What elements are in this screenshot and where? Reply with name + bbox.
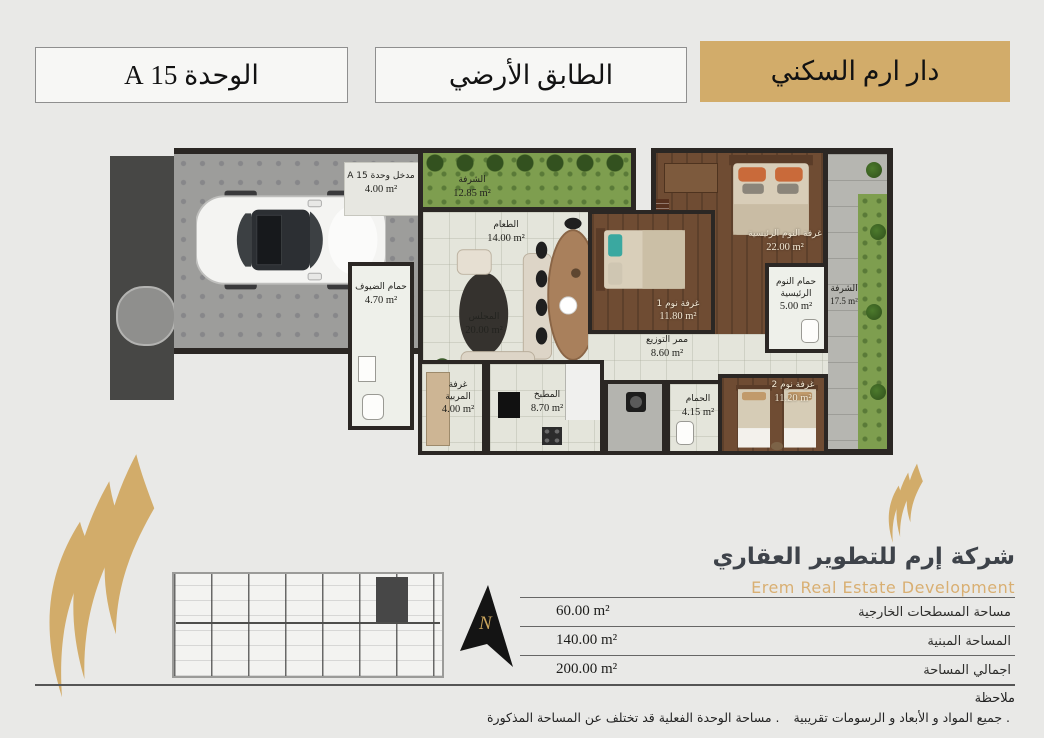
- area-value: 60.00 m²: [556, 603, 610, 620]
- front-balcony-label: الشرفة 12.85 m²: [439, 175, 505, 200]
- area-label: المساحة المبنية: [927, 634, 1011, 649]
- area-label: اجمالي المساحة: [923, 663, 1011, 678]
- compass-north-icon: N: [455, 583, 517, 668]
- corridor-label: ممر التوزيع 8.60 m²: [630, 335, 704, 360]
- header-floor-box: الطابق الأرضي: [375, 47, 687, 103]
- room-side-balcony: الشرفة 17.5 m²: [828, 148, 893, 455]
- majlis-label: المجلس 20.00 m²: [451, 312, 517, 337]
- side-balcony-label: الشرفة 17.5 m²: [828, 284, 860, 307]
- driveway-curb: [116, 286, 176, 346]
- master-bedroom-label: غرفة النوم الرئيسية 22.00 m²: [742, 229, 828, 254]
- unit-label: الوحدة 15 A: [124, 60, 259, 91]
- entrance-label: مدخل وحدة 15 A 4.00 m²: [347, 171, 415, 196]
- plant-icon: [870, 384, 886, 400]
- areas-table: مساحة المسطحات الخارجية 60.00 m² المساحة…: [520, 597, 1015, 684]
- area-value: 140.00 m²: [556, 632, 617, 649]
- header-project-box: دار ارم السكني: [700, 41, 1010, 102]
- brochure-page: الوحدة 15 A الطابق الأرضي دار ارم السكني: [0, 0, 1044, 738]
- toilet-fixture: [362, 394, 384, 420]
- utility-area: [604, 380, 666, 455]
- site-plan-unit-highlight: [376, 577, 408, 622]
- footer-divider: [35, 684, 1015, 686]
- room-maid: غرفة المربية 4.00 m²: [418, 360, 486, 455]
- washing-machine: [626, 392, 646, 412]
- project-label: دار ارم السكني: [771, 56, 940, 87]
- company-name-arabic: شركة إرم للتطوير العقاري: [713, 544, 1015, 570]
- logo-flame-small: [884, 460, 928, 548]
- toilet-fixture: [676, 421, 694, 445]
- note-item: . جميع المواد و الأبعاد و الرسومات تقريب…: [793, 710, 1010, 725]
- desk: [664, 163, 718, 193]
- toilet-fixture: [801, 319, 819, 343]
- stove-burners: [542, 427, 562, 445]
- area-row-total: اجمالي المساحة 200.00 m²: [520, 655, 1015, 684]
- bedroom1-label: غرفة نوم 1 11.80 m²: [647, 299, 709, 324]
- room-bedroom-2: غرفة نوم 2 11.20 m²: [718, 374, 828, 455]
- street-area: [110, 156, 174, 400]
- plant-icon: [866, 304, 882, 320]
- notes-title: ملاحظة: [975, 691, 1015, 706]
- guest-bathroom-label: حمام الضيوف 4.70 m²: [353, 282, 409, 307]
- room-guest-bathroom: حمام الضيوف 4.70 m²: [348, 262, 414, 430]
- bathroom-label: الحمام 4.15 m²: [673, 394, 723, 419]
- bedroom1-bed-illustration: [596, 222, 692, 298]
- floor-label: الطابق الأرضي: [449, 60, 613, 91]
- plant-icon: [866, 162, 882, 178]
- plant-icon: [870, 224, 886, 240]
- floor-plan: مدخل وحدة 15 A 4.00 m² الشرفة 12.85 m²: [110, 148, 893, 462]
- area-row-built: المساحة المبنية 140.00 m²: [520, 626, 1015, 655]
- room-kitchen: المطبخ 8.70 m²: [486, 360, 604, 455]
- bedroom2-label: غرفة نوم 2 11.20 m²: [764, 380, 822, 405]
- sink-fixture: [358, 356, 376, 382]
- company-name-english: Erem Real Estate Development: [751, 578, 1015, 597]
- site-plan-divider: [176, 622, 440, 624]
- room-master-bathroom: حمام النوم الرئيسية 5.00 m²: [765, 263, 828, 353]
- building-site-plan: [172, 572, 444, 678]
- maid-room-label: غرفة المربية 4.00 m²: [435, 380, 481, 417]
- area-label: مساحة المسطحات الخارجية: [858, 605, 1011, 620]
- header-unit-box: الوحدة 15 A: [35, 47, 348, 103]
- logo-flame-large: [35, 452, 170, 704]
- room-bedroom-1: غرفة نوم 1 11.80 m²: [588, 210, 715, 334]
- master-bathroom-label: حمام النوم الرئيسية 5.00 m²: [770, 277, 822, 314]
- dining-label: الطعام 14.00 m²: [475, 220, 537, 245]
- room-entrance: مدخل وحدة 15 A 4.00 m²: [344, 162, 420, 216]
- area-value: 200.00 m²: [556, 661, 617, 678]
- area-row-external: مساحة المسطحات الخارجية 60.00 m²: [520, 597, 1015, 626]
- kitchen-label: المطبخ 8.70 m²: [520, 390, 574, 415]
- compass-north-label: N: [478, 613, 493, 634]
- note-item: . مساحة الوحدة الفعلية قد تختلف عن المسا…: [487, 710, 780, 725]
- room-front-balcony: الشرفة 12.85 m²: [418, 148, 636, 212]
- kitchen-cabinet: [498, 392, 520, 418]
- planter-row: [423, 153, 631, 173]
